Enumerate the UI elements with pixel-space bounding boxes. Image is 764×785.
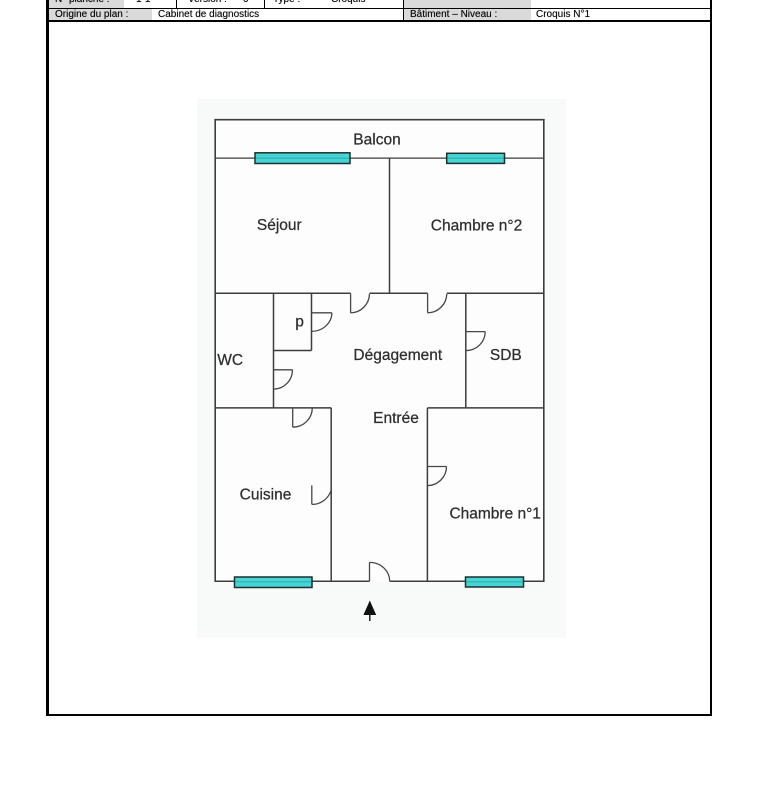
svg-text:SDB: SDB — [490, 347, 522, 364]
svg-text:Entrée: Entrée — [373, 410, 419, 427]
svg-text:Balcon: Balcon — [353, 131, 400, 148]
svg-text:Chambre n°1: Chambre n°1 — [449, 506, 541, 523]
svg-text:Chambre n°2: Chambre n°2 — [431, 218, 523, 235]
svg-text:Cuisine: Cuisine — [240, 487, 292, 504]
svg-text:Séjour: Séjour — [257, 217, 302, 234]
svg-text:p: p — [295, 313, 304, 330]
svg-text:WC: WC — [217, 352, 243, 369]
svg-text:Dégagement: Dégagement — [353, 347, 442, 364]
